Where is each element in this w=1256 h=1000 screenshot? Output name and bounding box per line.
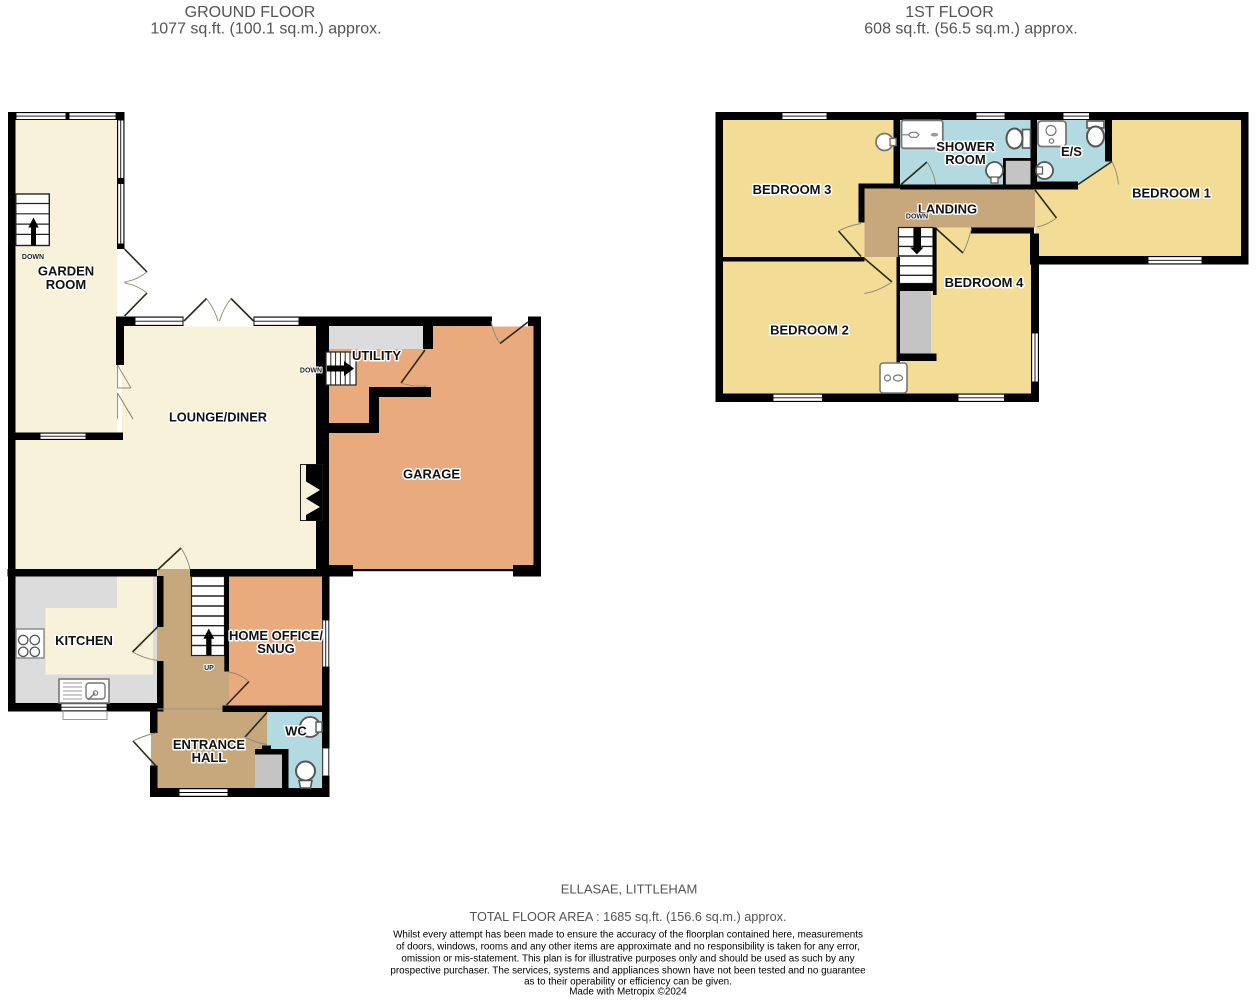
- svg-text:Whilst every attempt has been: Whilst every attempt has been made to en…: [393, 930, 863, 941]
- svg-text:omission or mis-statement. Thi: omission or mis-statement. This plan is …: [401, 954, 854, 965]
- svg-text:ELLASAE, LITTLEHAM: ELLASAE, LITTLEHAM: [561, 882, 698, 897]
- svg-text:E/S: E/S: [1061, 144, 1082, 159]
- svg-text:ROOM: ROOM: [945, 152, 985, 167]
- svg-text:GARAGE: GARAGE: [403, 467, 460, 482]
- svg-text:608 sq.ft. (56.5 sq.m.) approx: 608 sq.ft. (56.5 sq.m.) approx.: [864, 21, 1077, 38]
- svg-text:HALL: HALL: [192, 750, 227, 765]
- svg-text:of doors, windows, rooms and a: of doors, windows, rooms and any other i…: [396, 942, 860, 953]
- svg-text:DOWN: DOWN: [300, 368, 322, 375]
- svg-text:DOWN: DOWN: [906, 214, 928, 221]
- svg-text:1ST FLOOR: 1ST FLOOR: [905, 4, 994, 21]
- svg-text:KITCHEN: KITCHEN: [55, 633, 113, 648]
- svg-text:BEDROOM 1: BEDROOM 1: [1132, 186, 1211, 201]
- svg-text:TOTAL FLOOR AREA : 1685 sq.ft.: TOTAL FLOOR AREA : 1685 sq.ft. (156.6 sq…: [469, 910, 786, 924]
- svg-text:BEDROOM 2: BEDROOM 2: [770, 323, 849, 338]
- svg-text:WC: WC: [285, 724, 307, 739]
- svg-text:prospective purchaser. The ser: prospective purchaser. The services, sys…: [390, 966, 866, 977]
- svg-text:ROOM: ROOM: [46, 277, 86, 292]
- svg-text:BEDROOM 4: BEDROOM 4: [945, 275, 1025, 290]
- svg-text:LOUNGE/DINER: LOUNGE/DINER: [169, 410, 267, 425]
- svg-text:BEDROOM 3: BEDROOM 3: [753, 182, 832, 197]
- svg-text:SNUG: SNUG: [257, 641, 295, 656]
- svg-text:DOWN: DOWN: [22, 254, 44, 261]
- svg-text:UP: UP: [204, 665, 214, 672]
- svg-text:Made with Metropix ©2024: Made with Metropix ©2024: [569, 987, 687, 998]
- svg-text:GROUND FLOOR: GROUND FLOOR: [185, 4, 316, 21]
- svg-text:UTILITY: UTILITY: [352, 348, 401, 363]
- svg-text:1077 sq.ft. (100.1 sq.m.) appr: 1077 sq.ft. (100.1 sq.m.) approx.: [150, 21, 381, 38]
